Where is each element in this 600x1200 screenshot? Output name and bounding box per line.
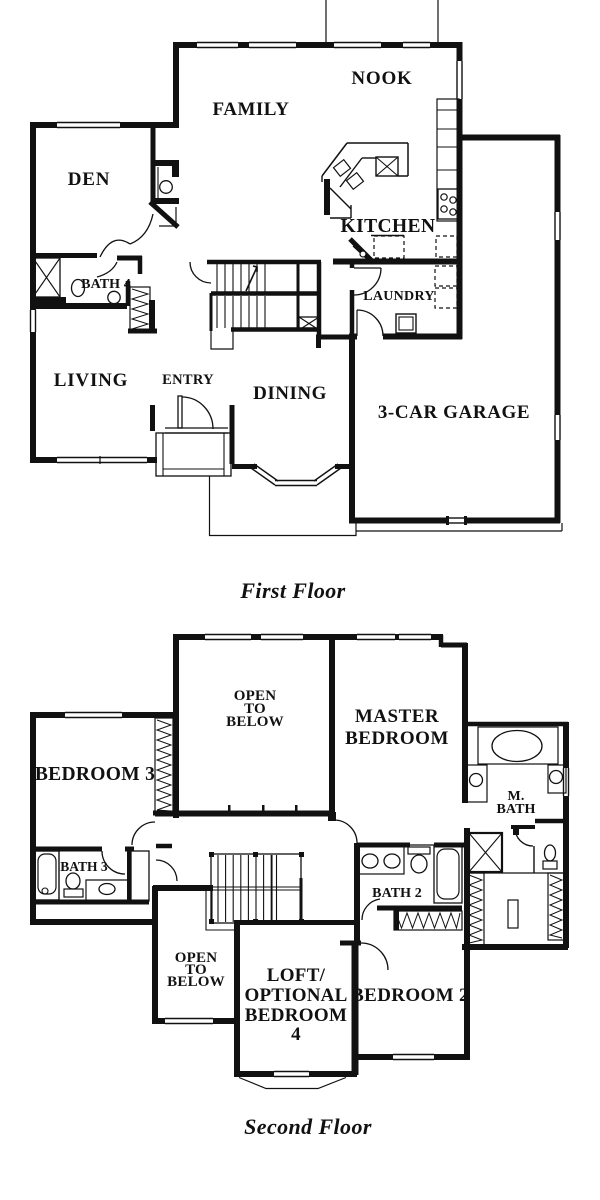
svg-text:BELOW: BELOW [167,974,225,990]
svg-text:DINING: DINING [253,383,327,404]
svg-text:First Floor: First Floor [239,578,345,603]
svg-text:MASTER: MASTER [355,706,439,727]
svg-text:BEDROOM: BEDROOM [345,728,449,749]
svg-text:OPTIONAL: OPTIONAL [245,985,348,1006]
svg-text:ENTRY: ENTRY [162,372,214,388]
svg-text:4: 4 [291,1024,301,1045]
svg-text:LOFT/: LOFT/ [267,965,326,986]
svg-text:BATH 3: BATH 3 [60,859,108,874]
svg-text:BEDROOM 3: BEDROOM 3 [35,764,155,785]
svg-text:DEN: DEN [68,169,111,190]
svg-text:BATH 2: BATH 2 [372,886,422,901]
svg-text:BEDROOM 2: BEDROOM 2 [351,985,469,1006]
svg-text:FAMILY: FAMILY [213,99,290,120]
svg-text:NOOK: NOOK [351,68,412,89]
svg-text:BATH: BATH [496,802,535,817]
svg-text:BATH 4: BATH 4 [81,277,131,292]
svg-text:Second Floor: Second Floor [244,1114,372,1139]
svg-text:BEDROOM: BEDROOM [245,1005,347,1026]
svg-text:3-CAR GARAGE: 3-CAR GARAGE [378,402,530,423]
svg-text:BELOW: BELOW [226,714,284,730]
svg-text:KITCHEN: KITCHEN [341,216,436,237]
svg-text:LAUNDRY: LAUNDRY [363,289,435,304]
svg-text:LIVING: LIVING [54,370,128,391]
